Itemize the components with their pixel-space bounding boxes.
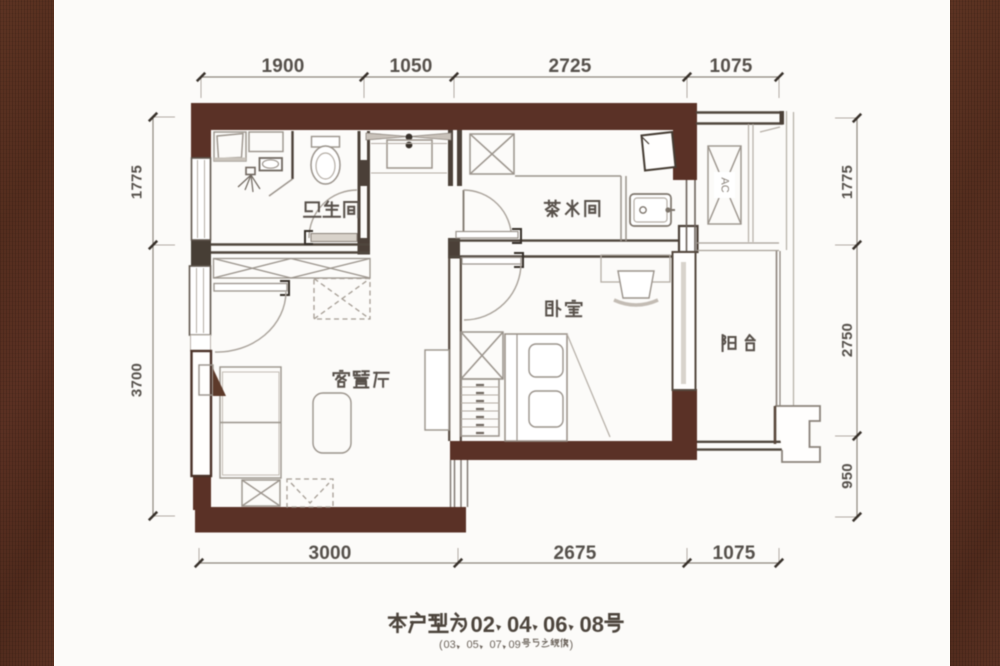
svg-text:AC: AC <box>719 177 731 192</box>
svg-text:08: 08 <box>580 612 604 637</box>
svg-text:06: 06 <box>543 612 567 637</box>
svg-text:02: 02 <box>471 612 495 637</box>
svg-text:1075: 1075 <box>709 56 752 77</box>
svg-text:3700: 3700 <box>129 363 146 397</box>
svg-text:1075: 1075 <box>712 543 755 564</box>
svg-text:1775: 1775 <box>839 165 856 199</box>
svg-text:2725: 2725 <box>548 56 591 77</box>
svg-text:03: 03 <box>444 639 456 651</box>
svg-text:05: 05 <box>467 639 479 651</box>
svg-text:07: 07 <box>490 639 502 651</box>
svg-text:): ) <box>570 639 574 651</box>
svg-text:950: 950 <box>839 463 856 489</box>
svg-text:09: 09 <box>509 639 521 651</box>
svg-text:2750: 2750 <box>839 323 856 357</box>
svg-text:1900: 1900 <box>261 56 304 77</box>
svg-text:2675: 2675 <box>553 543 596 564</box>
svg-text:1050: 1050 <box>389 56 432 77</box>
svg-text:1775: 1775 <box>129 165 146 199</box>
svg-text:04: 04 <box>507 612 532 637</box>
svg-text:3000: 3000 <box>308 543 351 564</box>
svg-text:(: ( <box>439 639 443 651</box>
